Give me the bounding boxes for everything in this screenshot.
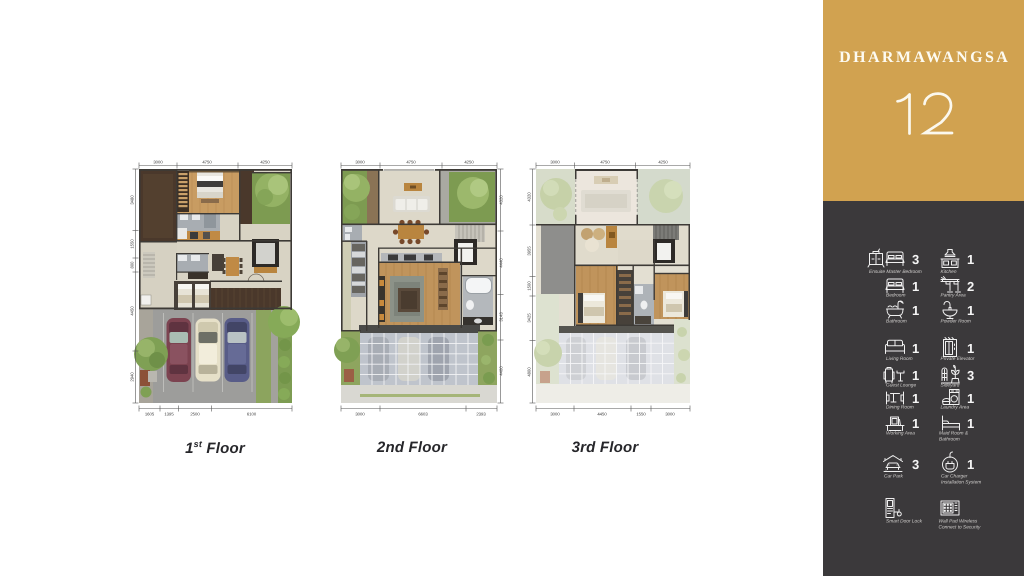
- svg-text:3955: 3955: [527, 246, 532, 256]
- svg-text:1550: 1550: [636, 412, 646, 417]
- svg-text:2393: 2393: [476, 412, 486, 417]
- svg-text:Wall Pad Wireless: Wall Pad Wireless: [939, 519, 978, 525]
- svg-text:1: 1: [967, 341, 974, 356]
- svg-text:1395: 1395: [164, 412, 174, 417]
- svg-text:Kitchen: Kitchen: [941, 269, 957, 275]
- svg-text:3000: 3000: [355, 412, 365, 417]
- svg-text:Dining Room: Dining Room: [886, 405, 914, 411]
- svg-text:4320: 4320: [527, 192, 532, 202]
- svg-text:4400: 4400: [499, 366, 504, 376]
- svg-text:Car Charger: Car Charger: [941, 474, 968, 480]
- svg-text:1605: 1605: [145, 412, 155, 417]
- svg-text:1: 1: [912, 303, 919, 318]
- svg-text:Pantry Area: Pantry Area: [941, 293, 966, 299]
- svg-text:2940: 2940: [130, 372, 135, 382]
- svg-text:3: 3: [967, 368, 974, 383]
- svg-text:4250: 4250: [260, 160, 270, 165]
- svg-text:4250: 4250: [658, 160, 668, 165]
- svg-text:1: 1: [967, 303, 974, 318]
- svg-text:4450: 4450: [130, 306, 135, 316]
- svg-text:6100: 6100: [247, 412, 257, 417]
- svg-text:3: 3: [912, 252, 919, 267]
- svg-text:Guest Lounge: Guest Lounge: [886, 383, 916, 389]
- svg-text:4450: 4450: [597, 412, 607, 417]
- svg-text:Smart Door Lock: Smart Door Lock: [886, 519, 923, 525]
- svg-text:1550: 1550: [130, 239, 135, 249]
- svg-text:Connect to Security: Connect to Security: [939, 525, 981, 531]
- svg-text:Bedroom: Bedroom: [886, 293, 905, 299]
- svg-text:Laundry Area: Laundry Area: [941, 405, 970, 411]
- svg-text:Sideyard: Sideyard: [941, 383, 960, 389]
- svg-text:Car Park: Car Park: [884, 474, 904, 480]
- svg-text:2: 2: [967, 279, 974, 294]
- svg-text:1: 1: [912, 279, 919, 294]
- svg-text:3000: 3000: [153, 160, 163, 165]
- svg-text:1: 1: [967, 391, 974, 406]
- svg-text:1500: 1500: [527, 281, 532, 291]
- svg-text:4750: 4750: [600, 160, 610, 165]
- svg-text:4250: 4250: [464, 160, 474, 165]
- svg-text:1: 1: [912, 341, 919, 356]
- svg-text:1: 1: [912, 368, 919, 383]
- svg-text:3143: 3143: [499, 312, 504, 322]
- svg-text:Bathroom: Bathroom: [939, 437, 960, 443]
- svg-text:Working Area: Working Area: [886, 431, 915, 437]
- svg-text:4440: 4440: [499, 258, 504, 268]
- svg-text:4750: 4750: [202, 160, 212, 165]
- svg-text:3000: 3000: [355, 160, 365, 165]
- svg-text:3: 3: [912, 457, 919, 472]
- svg-text:Bathroom: Bathroom: [886, 319, 907, 325]
- svg-text:Living Room: Living Room: [886, 356, 913, 362]
- svg-text:4320: 4320: [499, 195, 504, 205]
- svg-text:800: 800: [130, 261, 135, 269]
- svg-text:6603: 6603: [418, 412, 428, 417]
- svg-text:3000: 3000: [550, 160, 560, 165]
- svg-text:Powder Room: Powder Room: [941, 319, 971, 325]
- svg-text:4750: 4750: [406, 160, 416, 165]
- svg-text:3000: 3000: [665, 412, 675, 417]
- svg-text:4800: 4800: [527, 367, 532, 377]
- svg-text:1: 1: [912, 416, 919, 431]
- svg-text:2500: 2500: [190, 412, 200, 417]
- svg-text:3425: 3425: [527, 313, 532, 323]
- svg-text:1: 1: [967, 457, 974, 472]
- svg-text:Ensuite Master Bedroom: Ensuite Master Bedroom: [869, 269, 922, 275]
- svg-text:3480: 3480: [130, 195, 135, 205]
- svg-text:1: 1: [912, 391, 919, 406]
- svg-text:3000: 3000: [550, 412, 560, 417]
- svg-text:1: 1: [967, 252, 974, 267]
- svg-text:Installation System: Installation System: [941, 480, 981, 486]
- svg-text:1: 1: [967, 416, 974, 431]
- svg-text:Private Elevator: Private Elevator: [941, 356, 975, 362]
- svg-text:Maid Room &: Maid Room &: [939, 431, 968, 437]
